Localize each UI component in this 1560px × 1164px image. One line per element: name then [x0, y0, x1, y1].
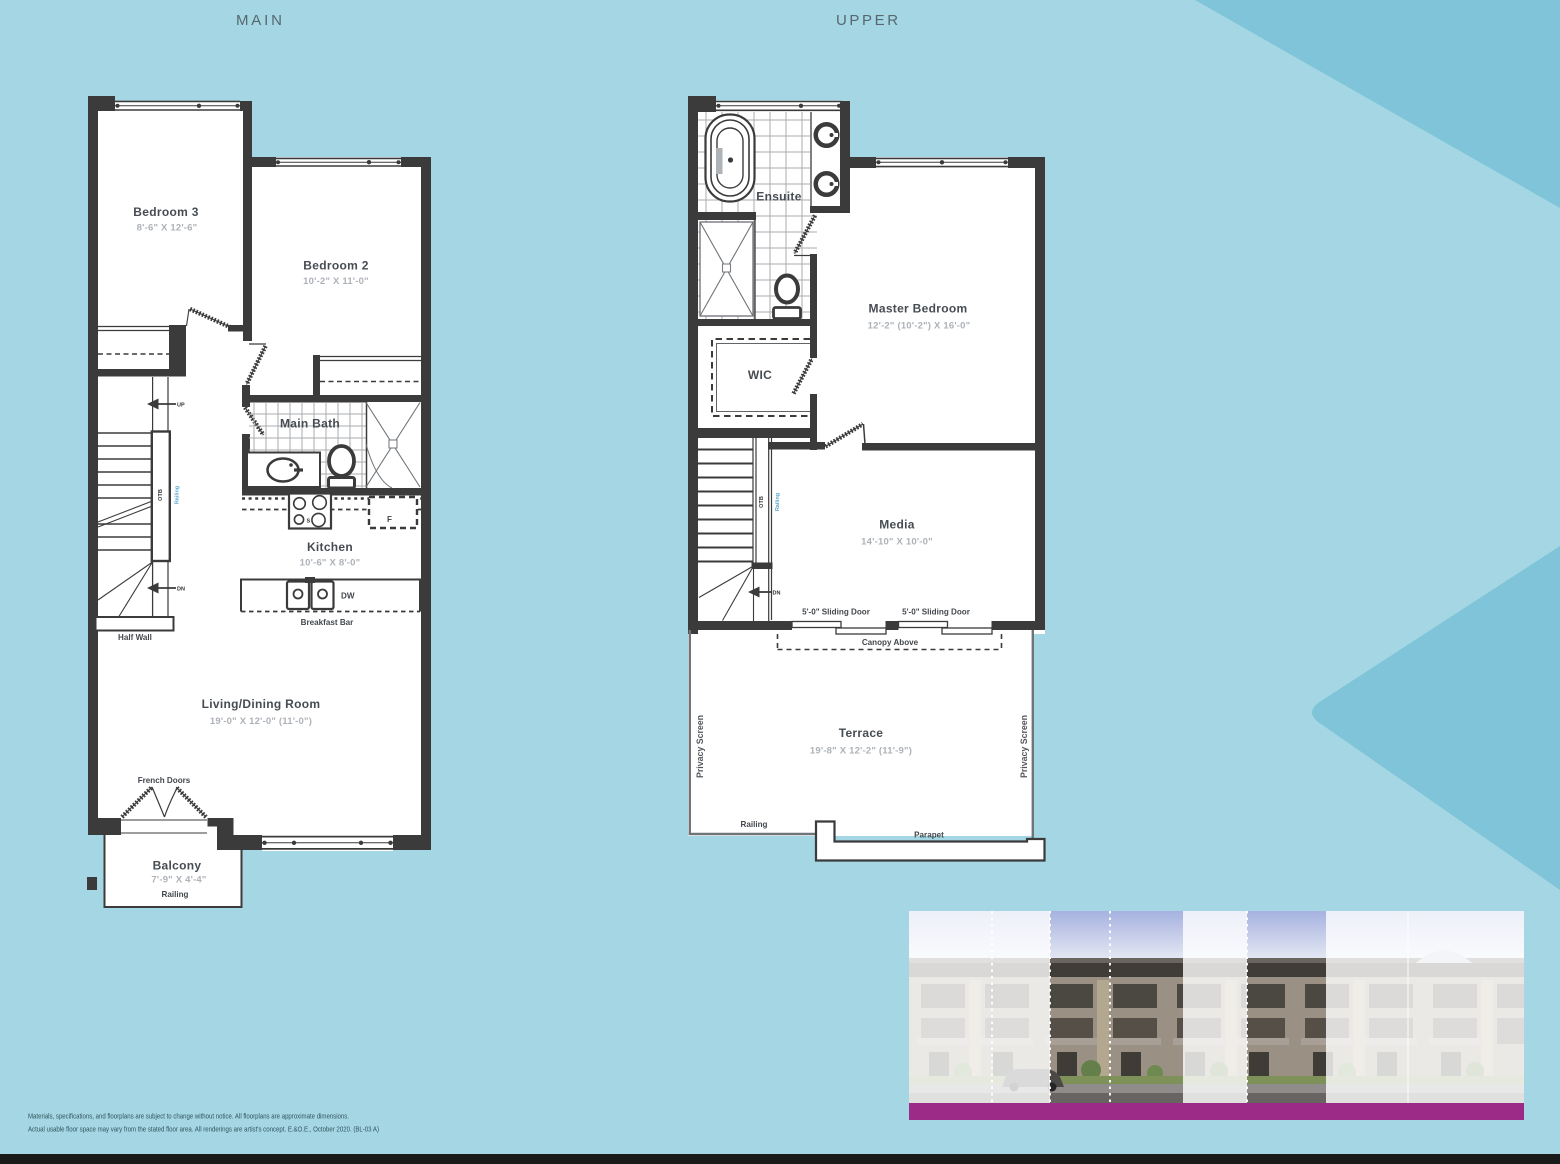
svg-text:19'-0" X 12'-0" (11'-0"): 19'-0" X 12'-0" (11'-0") [210, 716, 312, 727]
svg-text:Ensuite: Ensuite [756, 190, 801, 204]
svg-text:Railing: Railing [162, 890, 189, 899]
svg-text:19'-8" X 12'-2" (11'-9"): 19'-8" X 12'-2" (11'-9") [810, 746, 912, 757]
svg-text:DW: DW [341, 592, 355, 601]
svg-text:Actual usable floor space may: Actual usable floor space may vary from … [28, 1125, 379, 1134]
svg-text:DN: DN [773, 591, 781, 597]
svg-text:Railing: Railing [175, 486, 181, 504]
svg-text:OTB: OTB [158, 489, 164, 501]
svg-text:Bedroom 3: Bedroom 3 [133, 205, 198, 219]
svg-text:10'-2" X 11'-0": 10'-2" X 11'-0" [303, 276, 369, 287]
svg-text:DN: DN [177, 587, 185, 593]
svg-text:Bedroom 2: Bedroom 2 [303, 259, 368, 273]
svg-text:12'-2" (10'-2") X 16'-0": 12'-2" (10'-2") X 16'-0" [868, 321, 971, 332]
svg-text:Breakfast Bar: Breakfast Bar [301, 618, 354, 627]
svg-text:Half Wall: Half Wall [118, 633, 152, 642]
svg-text:10'-6" X 8'-0": 10'-6" X 8'-0" [300, 558, 361, 569]
svg-text:MAIN: MAIN [236, 12, 285, 29]
svg-text:5'-0" Sliding Door: 5'-0" Sliding Door [902, 608, 971, 617]
svg-text:Media: Media [879, 518, 915, 532]
svg-text:7'-9" X 4'-4": 7'-9" X 4'-4" [151, 875, 206, 886]
svg-text:Master Bedroom: Master Bedroom [869, 302, 968, 316]
svg-text:Railing: Railing [775, 493, 781, 511]
svg-text:Living/Dining Room: Living/Dining Room [202, 697, 321, 711]
svg-text:S: S [307, 519, 311, 525]
svg-text:Privacy Screen: Privacy Screen [1019, 715, 1029, 778]
svg-text:14'-10" X 10'-0": 14'-10" X 10'-0" [861, 537, 933, 548]
svg-text:F: F [387, 515, 392, 524]
svg-text:Canopy Above: Canopy Above [862, 638, 919, 647]
svg-text:French Doors: French Doors [138, 776, 191, 785]
svg-text:UPPER: UPPER [836, 12, 901, 29]
svg-text:Privacy Screen: Privacy Screen [695, 715, 705, 778]
svg-text:Materials, specifications, and: Materials, specifications, and floorplan… [28, 1112, 349, 1121]
svg-text:5'-0" Sliding Door: 5'-0" Sliding Door [802, 608, 871, 617]
svg-text:Railing: Railing [741, 820, 768, 829]
svg-text:Main Bath: Main Bath [280, 417, 340, 431]
svg-text:Parapet: Parapet [914, 831, 944, 840]
svg-text:8'-6" X 12'-6": 8'-6" X 12'-6" [137, 223, 198, 234]
svg-text:OTB: OTB [759, 496, 765, 508]
svg-text:Terrace: Terrace [839, 726, 884, 740]
svg-text:Kitchen: Kitchen [307, 540, 353, 554]
svg-text:WIC: WIC [748, 368, 772, 382]
svg-text:UP: UP [177, 403, 185, 409]
svg-text:Balcony: Balcony [153, 859, 202, 873]
